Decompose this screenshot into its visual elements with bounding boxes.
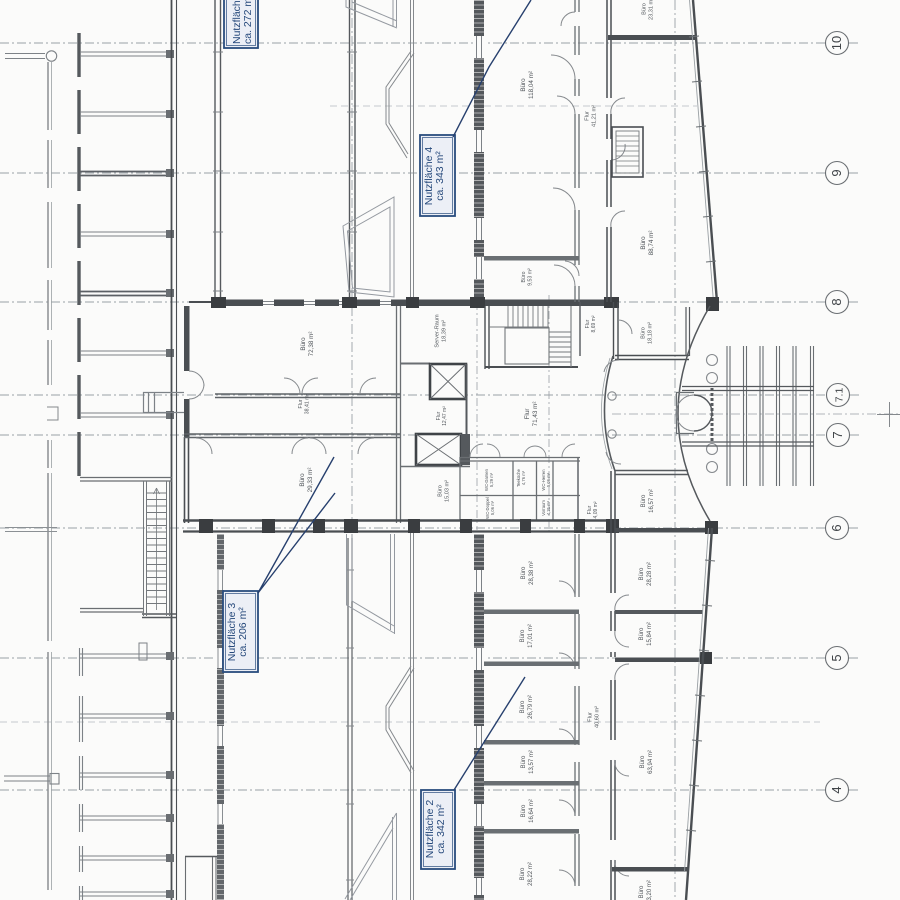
svg-text:4,21 m²: 4,21 m² (546, 500, 551, 515)
svg-text:28,28 m²: 28,28 m² (647, 562, 653, 586)
svg-text:Flur: Flur (588, 712, 594, 722)
svg-text:7: 7 (830, 431, 845, 438)
svg-text:5,06 m²: 5,06 m² (546, 472, 551, 487)
svg-text:8: 8 (829, 298, 844, 305)
svg-text:4,09 m²: 4,09 m² (593, 501, 599, 518)
svg-text:9: 9 (829, 169, 844, 176)
svg-text:ca. 272 m²: ca. 272 m² (242, 0, 254, 44)
svg-text:Büro: Büro (641, 327, 647, 339)
svg-text:18,39 m²: 18,39 m² (442, 320, 448, 342)
svg-text:15,84 m²: 15,84 m² (647, 622, 653, 646)
svg-text:118,04 m²: 118,04 m² (528, 71, 535, 99)
svg-text:63,94 m²: 63,94 m² (648, 750, 654, 774)
svg-text:23,31 m²: 23,31 m² (649, 0, 655, 20)
svg-text:38,41 m²: 38,41 m² (305, 393, 311, 414)
svg-text:5,29 m²: 5,29 m² (489, 472, 494, 487)
svg-text:71,43 m²: 71,43 m² (532, 402, 539, 427)
svg-text:Büro: Büro (520, 700, 526, 713)
svg-text:ca. 343 m²: ca. 343 m² (434, 151, 446, 201)
svg-text:Büro: Büro (641, 494, 647, 507)
svg-text:Büro: Büro (521, 566, 527, 579)
svg-text:5: 5 (829, 654, 844, 661)
svg-text:Büro: Büro (642, 3, 648, 15)
svg-text:17,01 m²: 17,01 m² (528, 624, 534, 648)
svg-text:Büro: Büro (438, 485, 444, 497)
svg-text:Büro: Büro (639, 567, 645, 580)
svg-text:Büro: Büro (639, 627, 645, 640)
svg-text:6: 6 (829, 524, 844, 531)
svg-text:Flur: Flur (524, 409, 531, 420)
svg-text:12,47 m²: 12,47 m² (442, 406, 448, 426)
svg-text:Büro: Büro (521, 755, 527, 768)
svg-text:Büro: Büro (520, 867, 526, 880)
svg-text:15,03 m²: 15,03 m² (445, 480, 451, 502)
svg-text:Flur: Flur (585, 111, 591, 121)
svg-text:Büro: Büro (521, 271, 527, 282)
svg-text:63,20 m²: 63,20 m² (647, 880, 653, 900)
svg-text:10: 10 (829, 36, 844, 50)
svg-text:Büro: Büro (299, 473, 306, 487)
svg-text:Server-Raum: Server-Raum (435, 314, 441, 348)
svg-text:29,33 m²: 29,33 m² (307, 468, 314, 493)
svg-text:28,38 m²: 28,38 m² (529, 561, 535, 585)
svg-text:8,69 m²: 8,69 m² (591, 315, 597, 332)
svg-text:Büro: Büro (300, 337, 307, 351)
svg-text:16,57 m²: 16,57 m² (649, 489, 655, 513)
svg-text:Büro: Büro (640, 236, 647, 250)
svg-text:ca. 342 m²: ca. 342 m² (435, 804, 447, 854)
svg-text:5,06 m²: 5,06 m² (490, 500, 495, 515)
svg-text:40,60 m²: 40,60 m² (595, 706, 601, 728)
svg-text:13,57 m²: 13,57 m² (529, 750, 535, 774)
svg-text:88,74 m²: 88,74 m² (648, 231, 655, 256)
svg-text:4,76 m²: 4,76 m² (521, 470, 526, 485)
svg-text:Büro: Büro (640, 755, 646, 768)
svg-text:16,64 m²: 16,64 m² (529, 799, 535, 823)
svg-text:Büro: Büro (520, 629, 526, 642)
svg-text:Büro: Büro (521, 804, 527, 817)
svg-text:4: 4 (829, 786, 844, 793)
svg-text:7.1: 7.1 (834, 388, 846, 403)
svg-text:9,53 m²: 9,53 m² (528, 268, 534, 286)
svg-text:Flur: Flur (298, 399, 304, 408)
svg-text:41,21 m²: 41,21 m² (592, 105, 598, 127)
svg-text:72,38 m²: 72,38 m² (308, 332, 315, 357)
svg-text:Büro: Büro (520, 78, 527, 92)
svg-text:ca. 206 m²: ca. 206 m² (237, 607, 249, 657)
svg-text:18,18 m²: 18,18 m² (648, 322, 654, 344)
svg-text:28,22 m²: 28,22 m² (528, 862, 534, 886)
svg-text:Büro: Büro (639, 885, 645, 898)
svg-text:26,79 m²: 26,79 m² (528, 695, 534, 719)
